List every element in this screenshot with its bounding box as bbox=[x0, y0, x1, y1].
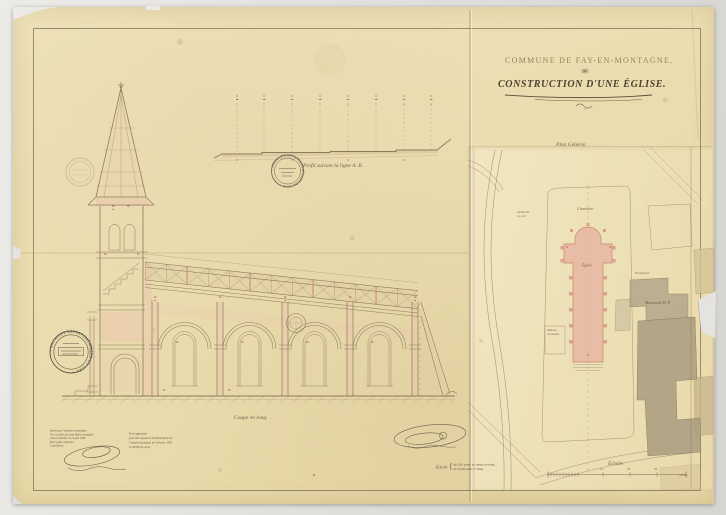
commune-heading: COMMUNE DE FAY-EN-MONTAGNE. bbox=[505, 56, 670, 65]
caption-section: Coupe en long. bbox=[234, 415, 267, 421]
scale-note-word: Échelle bbox=[436, 465, 448, 469]
note-line: Le Préfet du Jura, bbox=[129, 445, 197, 449]
label-presbytery: Presbytère bbox=[635, 272, 649, 275]
stamp-rim-text: • ARCHIVES DÉPARTEMENTALES DU JURA • bbox=[49, 329, 93, 374]
label-left-parcel-line2: la cure bbox=[517, 215, 529, 219]
drawing-linework: • ARCHIVES DÉPARTEMENTALES DU JURA • • A… bbox=[0, 0, 726, 515]
label-cemetery: Cimetière bbox=[577, 207, 593, 211]
note-line: L'architecte, bbox=[50, 444, 109, 448]
label-church: Église bbox=[582, 264, 592, 268]
scale-note: Échelle { de 0,01 pour la coupe en long,… bbox=[436, 463, 495, 472]
plan-scale-tick-20: 20 bbox=[627, 468, 630, 471]
label-small-parcel: Maison commune bbox=[547, 329, 560, 336]
terrain-profile-drawing bbox=[214, 96, 451, 161]
caption-profile: Profil suivant la ligne A. B. bbox=[303, 163, 363, 169]
plan-scale-label: Échelle bbox=[608, 462, 623, 467]
church-section-drawing bbox=[62, 82, 457, 403]
caption-plan-title: Plan Général bbox=[556, 142, 586, 148]
plan-scale-tick-10: 10 bbox=[600, 468, 603, 471]
scanned-drawing-page: • ARCHIVES DÉPARTEMENTALES DU JURA • • A… bbox=[0, 0, 726, 515]
approval-note-right: Vu et approuvé, pour être annexé à la dé… bbox=[129, 432, 197, 449]
svg-text:• ARCHIVES DÉPARTEMENTALES DU: • ARCHIVES DÉPARTEMENTALES DU JURA • bbox=[49, 329, 93, 374]
document-title: CONSTRUCTION D'UNE ÉGLISE. bbox=[498, 79, 663, 90]
label-left-parcel: Jardin de la cure bbox=[517, 211, 529, 218]
label-small-parcel-line2: commune bbox=[547, 333, 560, 337]
faint-stamp bbox=[66, 158, 94, 186]
archives-stamp-left: • ARCHIVES DÉPARTEMENTALES DU JURA • bbox=[49, 329, 93, 374]
plan-scale-unit: mètres bbox=[679, 474, 688, 477]
site-plan-drawing bbox=[468, 147, 714, 490]
certification-note-left: Dressé par l'architecte soussigné, Vu et… bbox=[50, 429, 109, 448]
label-house: Maison de M. P. bbox=[645, 301, 670, 305]
scale-note-brace: { bbox=[449, 463, 453, 472]
archives-stamp-top: • ARCHIVES DÉPARTEMENTALES DU JURA • bbox=[270, 153, 305, 189]
plan-scale-tick-30: 30 bbox=[654, 468, 657, 471]
signature-flourish-center bbox=[393, 421, 467, 450]
scale-note-line2: de 0,002 pour le Plan. bbox=[454, 467, 496, 471]
